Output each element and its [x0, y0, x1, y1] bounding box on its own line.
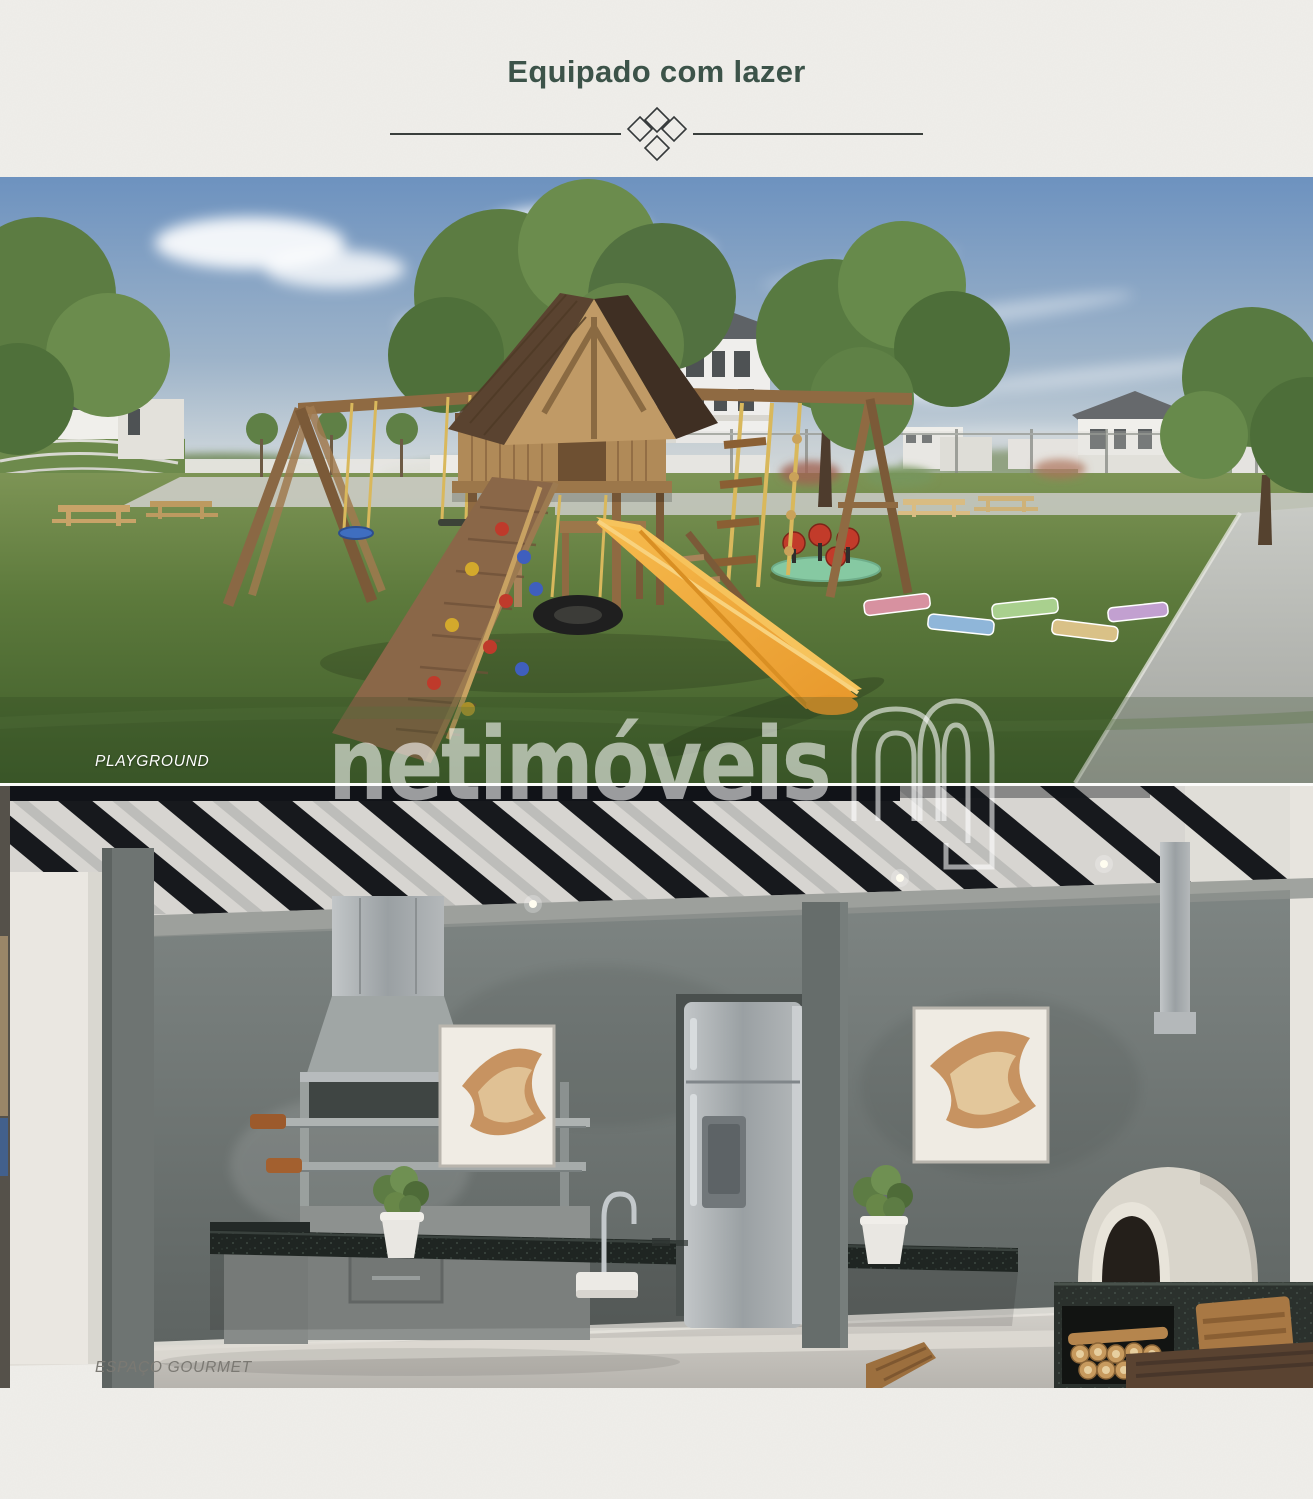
page-title: Equipado com lazer	[0, 54, 1313, 90]
divider	[390, 106, 923, 162]
refrigerator	[684, 1002, 802, 1328]
photo-caption-playground: PLAYGROUND	[95, 753, 209, 771]
listing-leisure-section: Equipado com lazer	[0, 0, 1313, 1499]
roof-edge-band	[0, 786, 900, 801]
artwork-left	[440, 1026, 554, 1166]
figure-separator	[0, 783, 1313, 786]
photo-espaco-gourmet: ESPAÇO GOURMET	[0, 786, 1313, 1388]
swing-disc-seat	[339, 527, 373, 539]
photo-caption-espaco-gourmet: ESPAÇO GOURMET	[95, 1359, 252, 1377]
playground-render	[0, 177, 1313, 783]
section-header: Equipado com lazer	[0, 0, 1313, 177]
photo-playground: PLAYGROUND	[0, 177, 1313, 783]
artwork-right	[914, 1008, 1048, 1162]
divider-line-right	[693, 133, 924, 135]
diamond-knot-ornament-icon	[621, 106, 693, 162]
divider-line-left	[390, 133, 621, 135]
gourmet-space-render	[0, 786, 1313, 1388]
